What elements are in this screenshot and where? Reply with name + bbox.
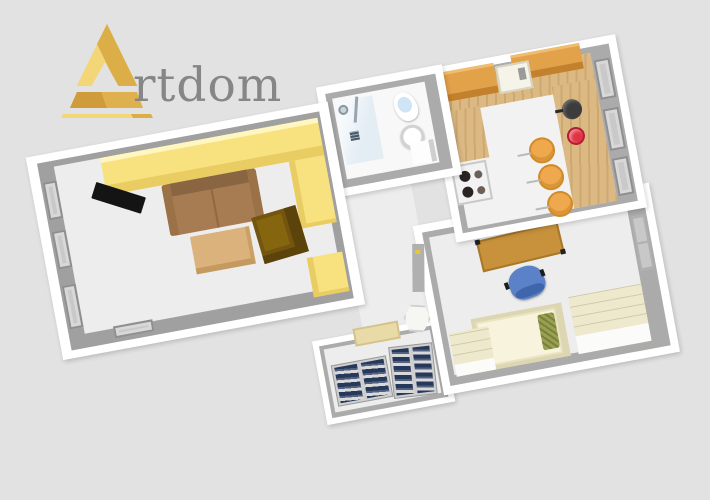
dresser-left: [449, 326, 496, 377]
logo-wordmark: rtdom: [133, 58, 282, 113]
burner-icon: [461, 186, 474, 199]
sink-pedestal: [410, 139, 438, 165]
bedroom-door: [412, 244, 424, 292]
floorplan-render: rtdom: [0, 0, 710, 500]
shower-drain: [349, 131, 359, 141]
shoe-shelf-right: [388, 342, 438, 399]
door-handle-icon: [415, 250, 420, 254]
kitchen: [424, 34, 647, 242]
burner-icon: [477, 185, 486, 194]
wardrobe-side-lower: [307, 252, 350, 298]
burner-icon: [474, 170, 483, 179]
living-room: [26, 102, 365, 360]
